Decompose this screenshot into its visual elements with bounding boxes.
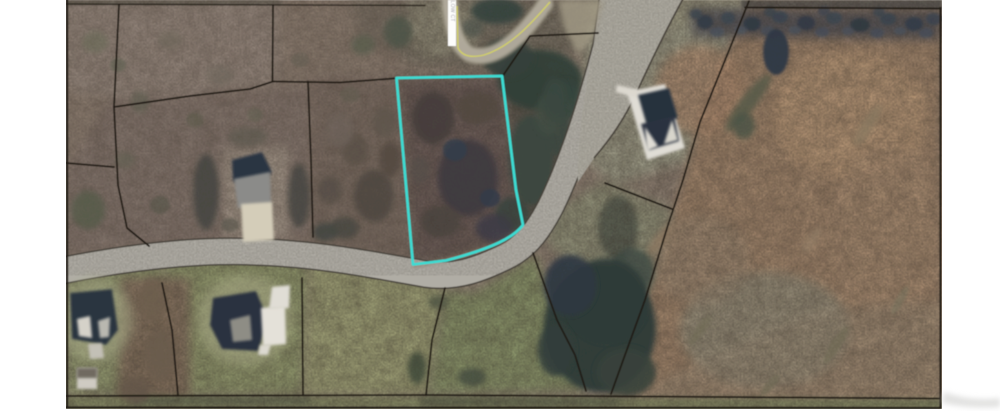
svg-text:WICKLOW CT: WICKLOW CT [449, 0, 455, 22]
